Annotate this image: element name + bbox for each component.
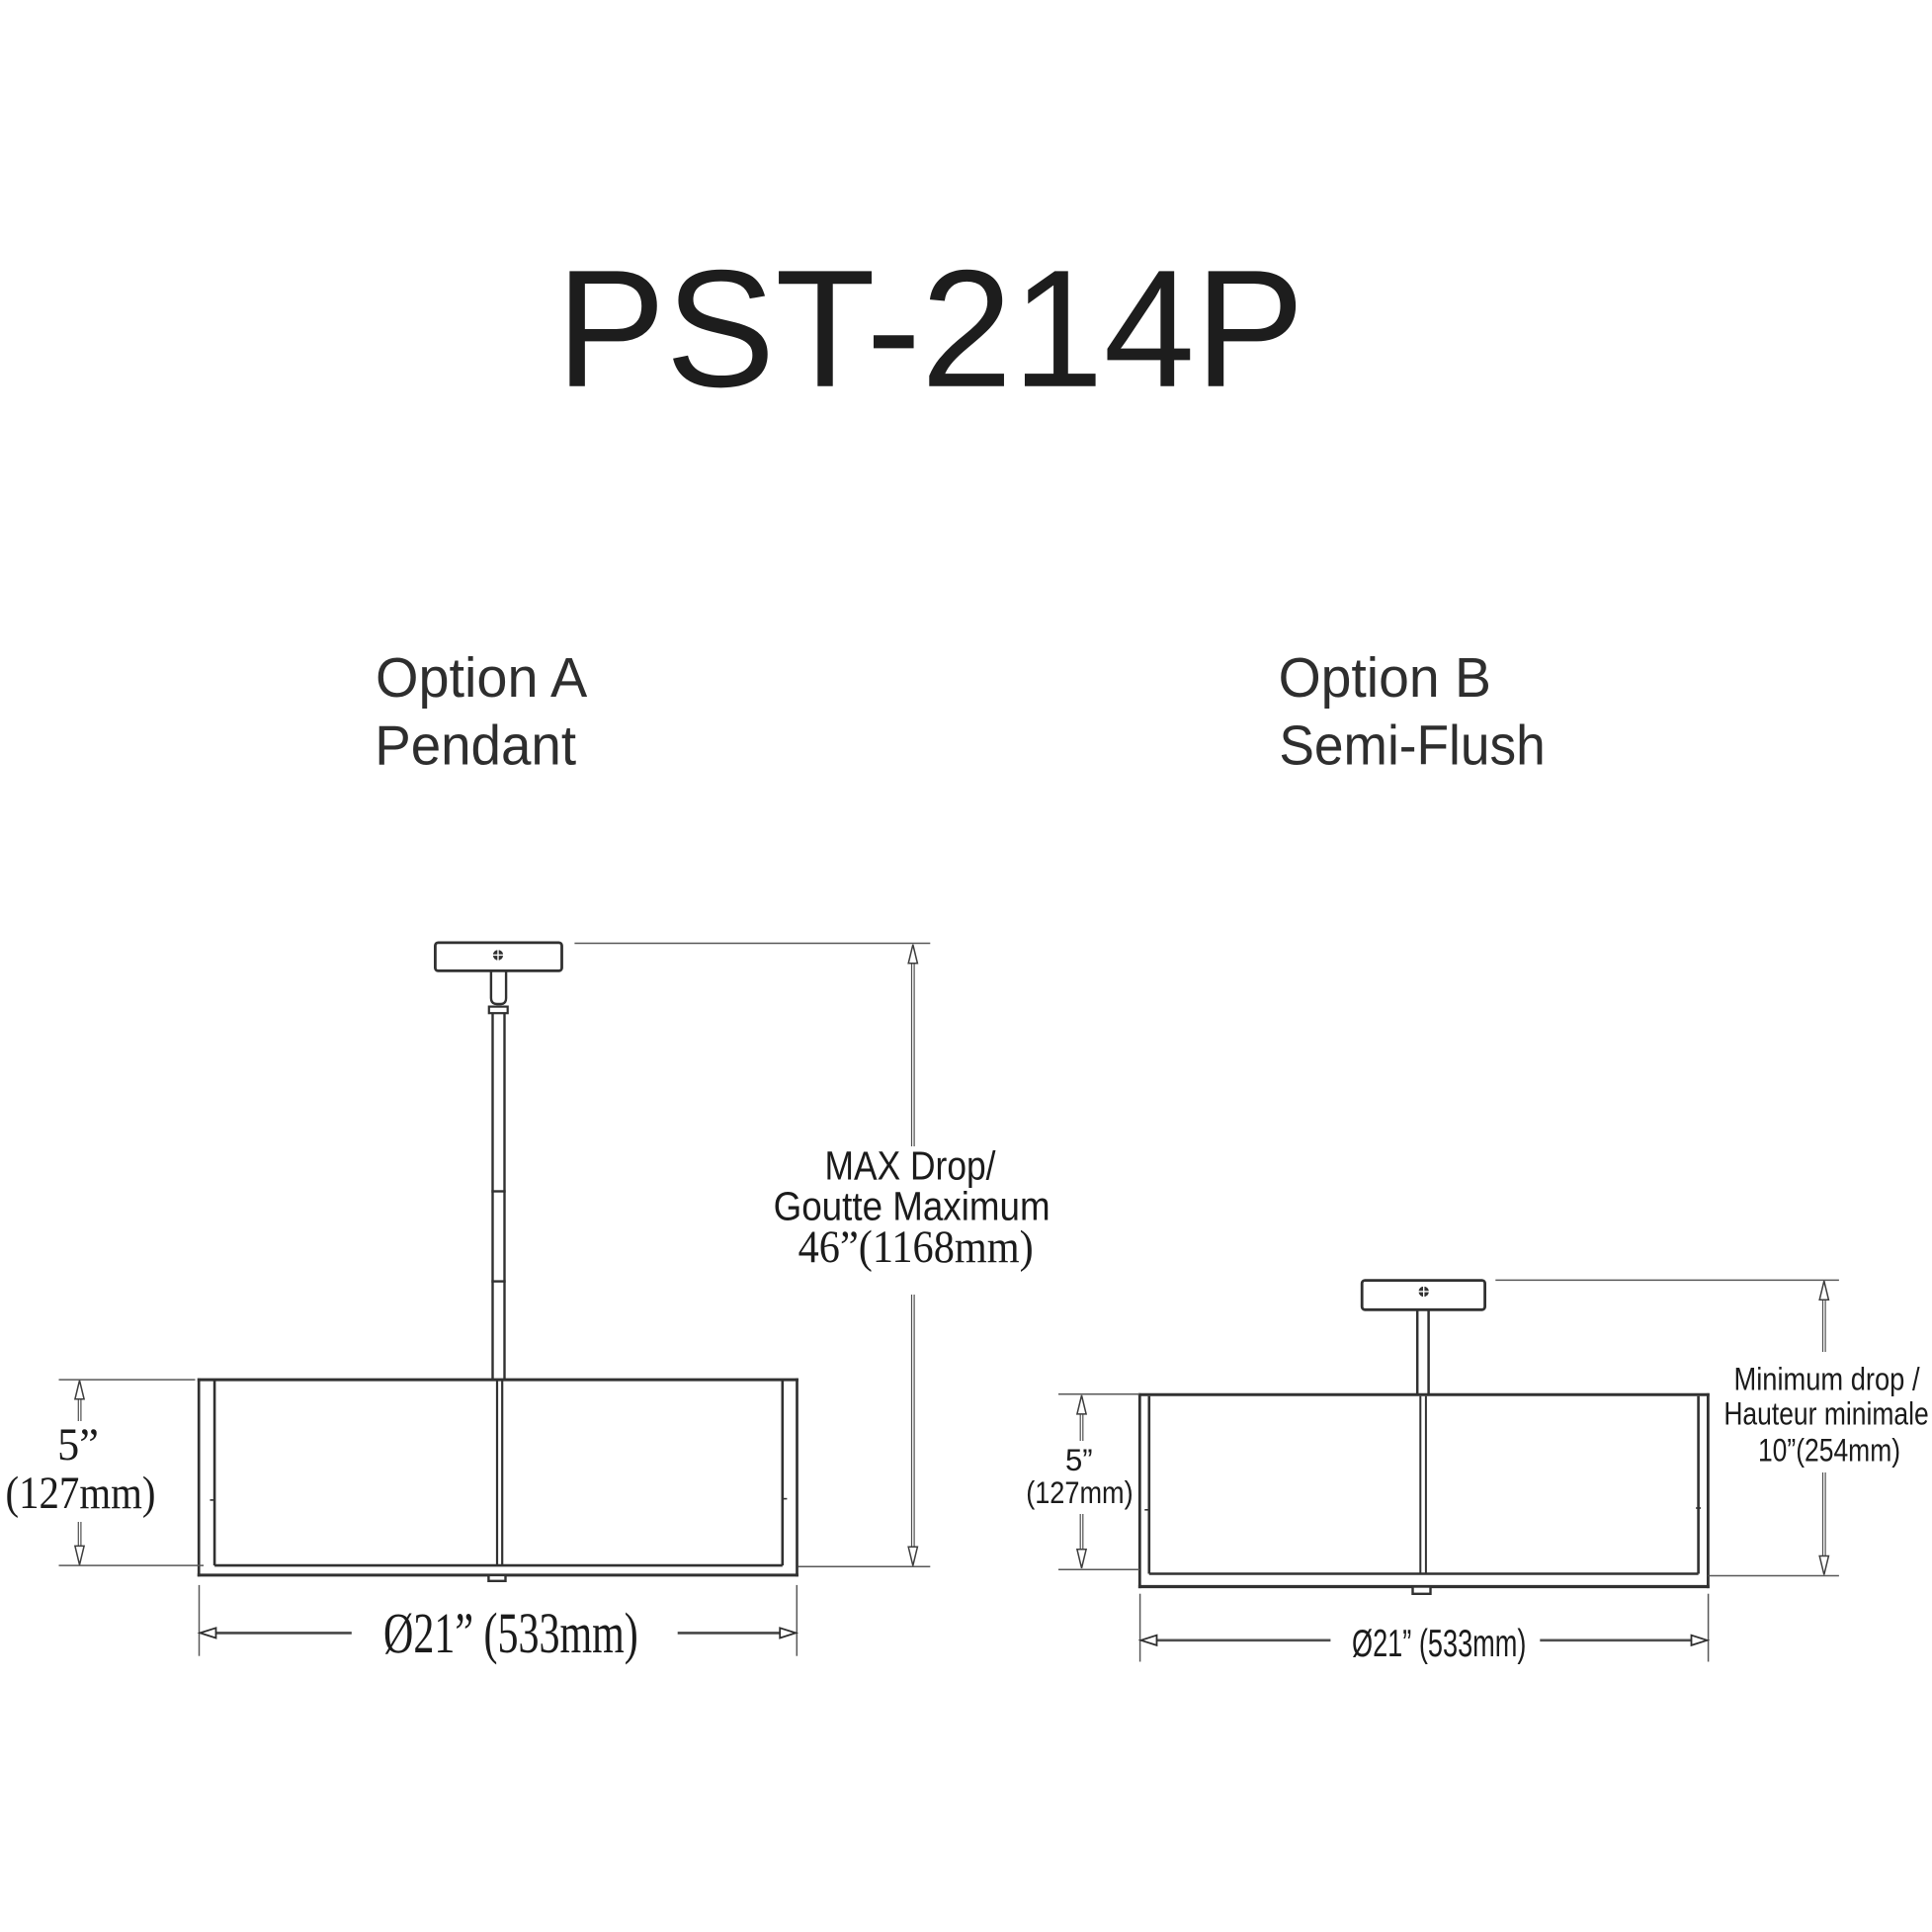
svg-text:Option A: Option A: [376, 645, 588, 709]
svg-text:46”(1168mm): 46”(1168mm): [798, 1220, 1034, 1272]
svg-text:Semi-Flush: Semi-Flush: [1279, 714, 1545, 777]
svg-text:10”(254mm): 10”(254mm): [1758, 1433, 1900, 1469]
svg-text:Ø21” (533mm): Ø21” (533mm): [383, 1602, 638, 1665]
svg-text:5”: 5”: [1065, 1443, 1093, 1477]
svg-text:(127mm): (127mm): [1026, 1476, 1133, 1510]
svg-text:5”: 5”: [57, 1419, 99, 1470]
svg-text:Hauteur minimale: Hauteur minimale: [1723, 1396, 1928, 1432]
svg-text:PST-214P: PST-214P: [556, 234, 1304, 422]
svg-text:(127mm): (127mm): [5, 1468, 155, 1518]
svg-text:MAX Drop/: MAX Drop/: [825, 1143, 996, 1189]
svg-text:Option B: Option B: [1279, 645, 1491, 709]
svg-text:Ø21” (533mm): Ø21” (533mm): [1352, 1623, 1526, 1665]
svg-text:Minimum drop /: Minimum drop /: [1733, 1363, 1920, 1398]
svg-text:Pendant: Pendant: [375, 714, 576, 777]
